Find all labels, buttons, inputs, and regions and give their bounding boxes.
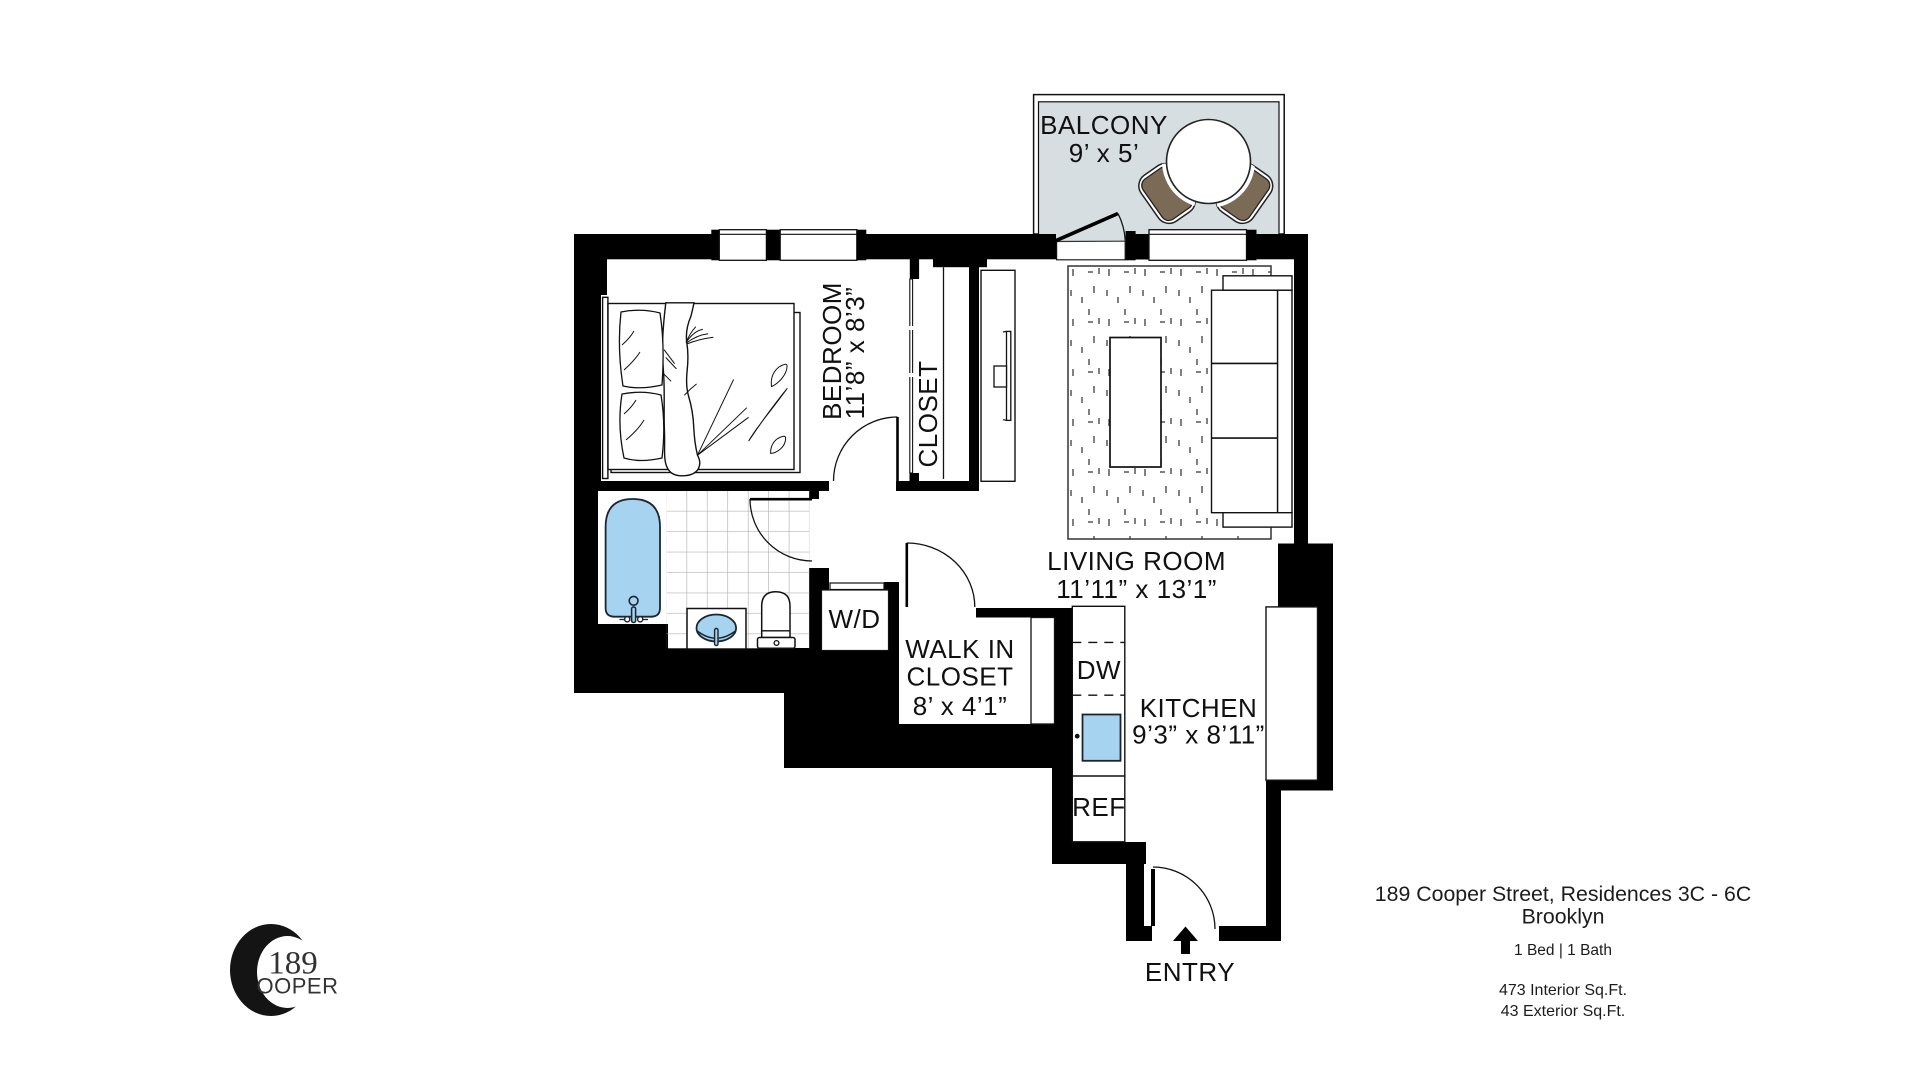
- svg-text:9’ x 5’: 9’ x 5’: [1069, 138, 1139, 168]
- svg-text:WALK IN: WALK IN: [905, 634, 1014, 664]
- svg-text:BALCONY: BALCONY: [1040, 110, 1168, 140]
- svg-text:ENTRY: ENTRY: [1145, 957, 1235, 987]
- svg-text:CLOSET: CLOSET: [913, 360, 943, 467]
- svg-text:43 Exterior Sq.Ft.: 43 Exterior Sq.Ft.: [1501, 1003, 1626, 1020]
- svg-text:11’11” x 13’1”: 11’11” x 13’1”: [1056, 574, 1217, 604]
- svg-text:W/D: W/D: [828, 604, 880, 634]
- svg-text:KITCHEN: KITCHEN: [1140, 693, 1258, 723]
- svg-text:1 Bed | 1 Bath: 1 Bed | 1 Bath: [1514, 942, 1612, 959]
- svg-text:Brooklyn: Brooklyn: [1522, 905, 1605, 929]
- svg-text:8’ x 4’1”: 8’ x 4’1”: [913, 691, 1008, 721]
- svg-text:9’3” x 8’11”: 9’3” x 8’11”: [1132, 720, 1265, 750]
- svg-text:DW: DW: [1077, 655, 1121, 685]
- svg-text:CLOSET: CLOSET: [906, 662, 1013, 692]
- svg-text:189 Cooper Street, Residences: 189 Cooper Street, Residences 3C - 6C: [1375, 882, 1751, 906]
- svg-text:REF: REF: [1072, 792, 1126, 822]
- svg-text:LIVING ROOM: LIVING ROOM: [1047, 546, 1226, 576]
- svg-text:OOPER: OOPER: [257, 974, 339, 999]
- svg-text:473 Interior Sq.Ft.: 473 Interior Sq.Ft.: [1499, 982, 1627, 999]
- svg-text:11’8” x 8’3”: 11’8” x 8’3”: [840, 287, 870, 420]
